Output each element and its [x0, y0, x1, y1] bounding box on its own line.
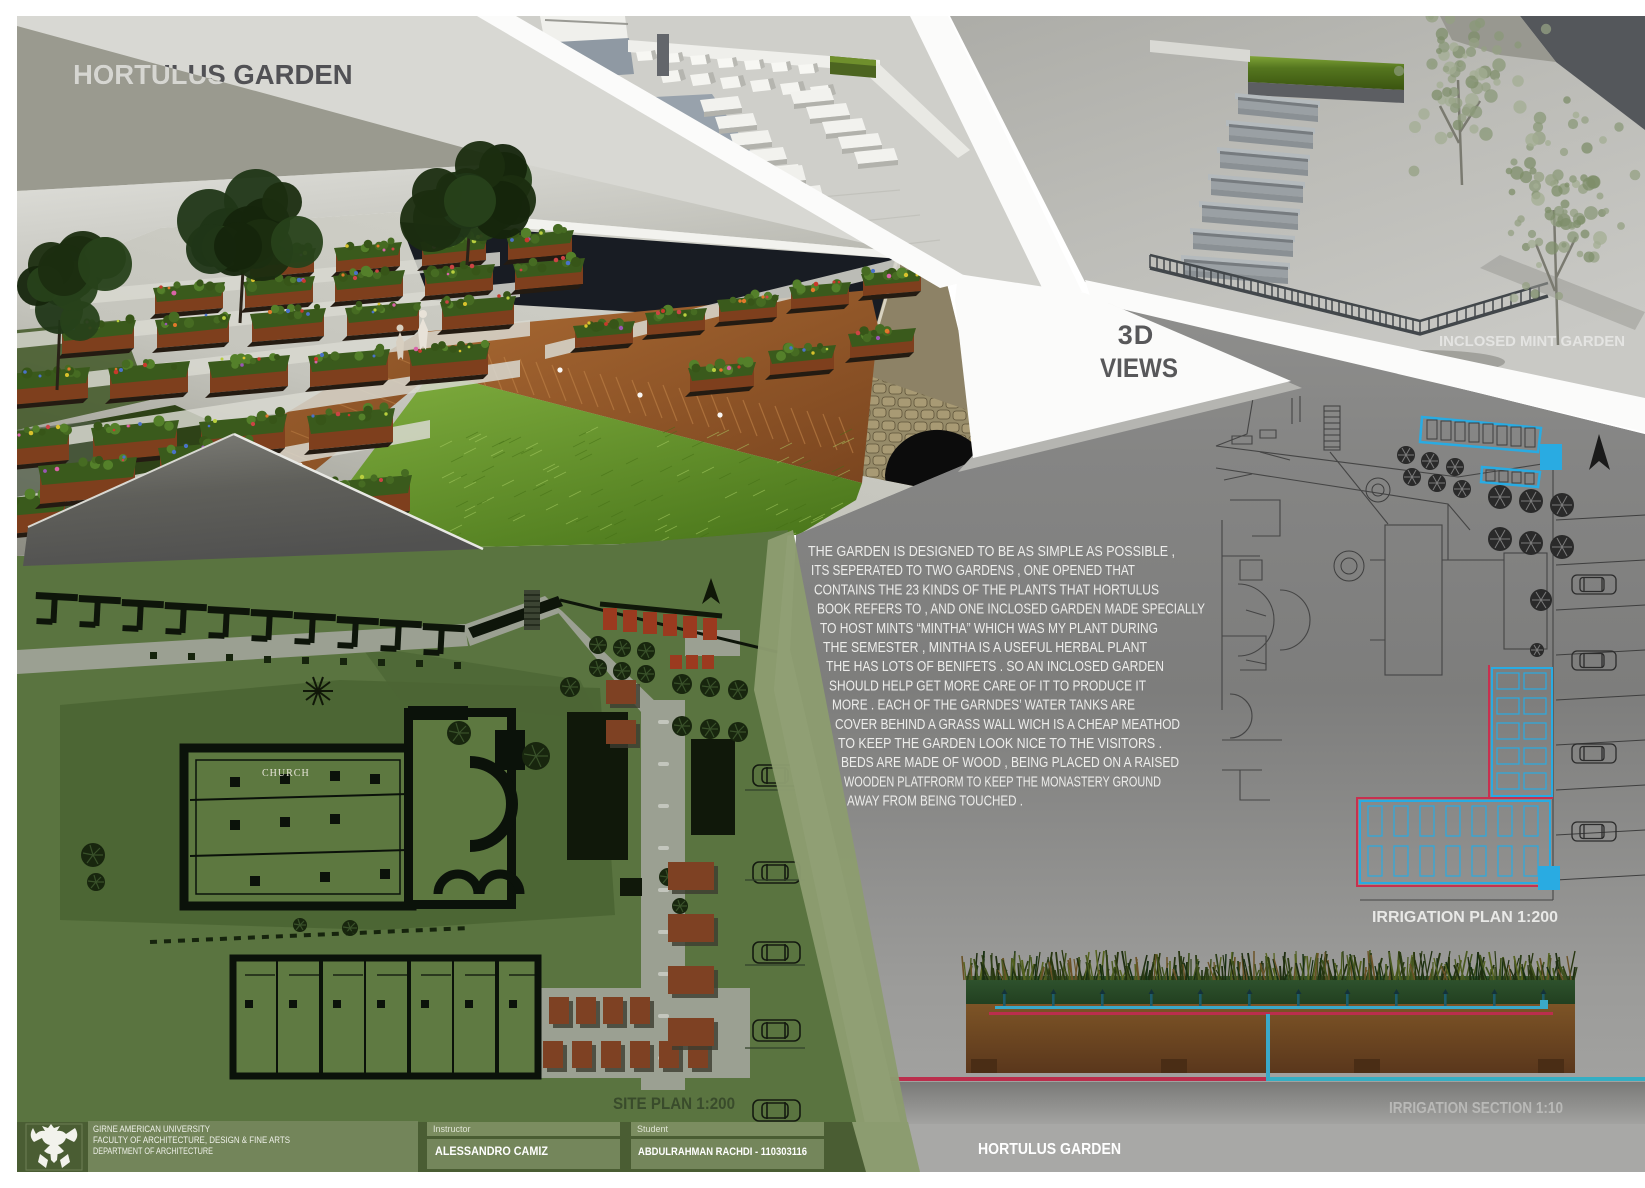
svg-text:COVER BEHIND A GRASS WALL WICH: COVER BEHIND A GRASS WALL WICH IS A CHEA… [835, 717, 1180, 733]
svg-text:ITS SEPERATED TO TWO GARDENS ,: ITS SEPERATED TO TWO GARDENS , ONE OPENE… [811, 563, 1135, 579]
svg-text:Instructor: Instructor [433, 1124, 471, 1134]
svg-text:Student: Student [637, 1124, 669, 1134]
svg-text:GIRNE AMERICAN UNIVERSITY: GIRNE AMERICAN UNIVERSITY [93, 1124, 210, 1134]
svg-text:WOODEN PLATFRORM TO KEEP THE M: WOODEN PLATFRORM TO KEEP THE MONASTERY G… [844, 774, 1161, 790]
svg-text:SITE PLAN 1:200: SITE PLAN 1:200 [613, 1094, 735, 1113]
svg-text:DEPARTMENT OF ARCHITECTURE: DEPARTMENT OF ARCHITECTURE [93, 1146, 213, 1156]
svg-text:ALESSANDRO CAMIZ: ALESSANDRO CAMIZ [435, 1144, 548, 1158]
svg-text:IRRIGATION SECTION 1:10: IRRIGATION SECTION 1:10 [1389, 1100, 1563, 1117]
svg-text:IRRIGATION PLAN 1:200: IRRIGATION PLAN 1:200 [1372, 909, 1558, 926]
svg-text:CHURCH: CHURCH [262, 768, 310, 779]
svg-text:SHOULD HELP GET MORE CARE OF I: SHOULD HELP GET MORE CARE OF IT TO PRODU… [829, 678, 1146, 694]
svg-text:MORE . EACH OF THE GARNDES’ WA: MORE . EACH OF THE GARNDES’ WATER TANKS … [832, 698, 1135, 714]
svg-text:INCLOSED MINT GARDEN: INCLOSED MINT GARDEN [1439, 333, 1625, 350]
svg-text:3D: 3D [1118, 320, 1155, 350]
svg-text:THE GARDEN IS DESIGNED TO BE A: THE GARDEN IS DESIGNED TO BE AS SIMPLE A… [808, 544, 1175, 560]
svg-text:CONTAINS THE 23 KINDS OF THE P: CONTAINS THE 23 KINDS OF THE PLANTS THAT… [814, 582, 1159, 598]
svg-text:AWAY FROM BEING TOUCHED .: AWAY FROM BEING TOUCHED . [847, 794, 1023, 810]
svg-text:BOOK REFERS TO , AND ONE INCLO: BOOK REFERS TO , AND ONE INCLOSED GARDEN… [817, 602, 1205, 618]
svg-text:THE SEMESTER , MINTHA IS A USE: THE SEMESTER , MINTHA IS A USEFUL HERBAL… [823, 640, 1147, 656]
svg-text:BEDS ARE MADE OF WOOD , BEING: BEDS ARE MADE OF WOOD , BEING PLACED ON … [841, 755, 1179, 771]
svg-text:VIEWS: VIEWS [1100, 353, 1178, 383]
svg-text:ABDULRAHMAN RACHDI - 110303116: ABDULRAHMAN RACHDI - 110303116 [638, 1146, 807, 1158]
svg-text:THE HAS LOTS OF BENIFETS . SO: THE HAS LOTS OF BENIFETS . SO AN INCLOSE… [826, 659, 1164, 675]
svg-text:TO HOST MINTS “MINTHA” WHICH W: TO HOST MINTS “MINTHA” WHICH WAS MY PLAN… [820, 621, 1158, 637]
svg-text:FACULTY OF ARCHITECTURE, DESIG: FACULTY OF ARCHITECTURE, DESIGN & FINE A… [93, 1135, 290, 1145]
svg-text:HORTULUS GARDEN: HORTULUS GARDEN [978, 1141, 1121, 1158]
svg-text:TO KEEP THE GARDEN LOOK NICE T: TO KEEP THE GARDEN LOOK NICE TO THE VISI… [838, 736, 1162, 752]
